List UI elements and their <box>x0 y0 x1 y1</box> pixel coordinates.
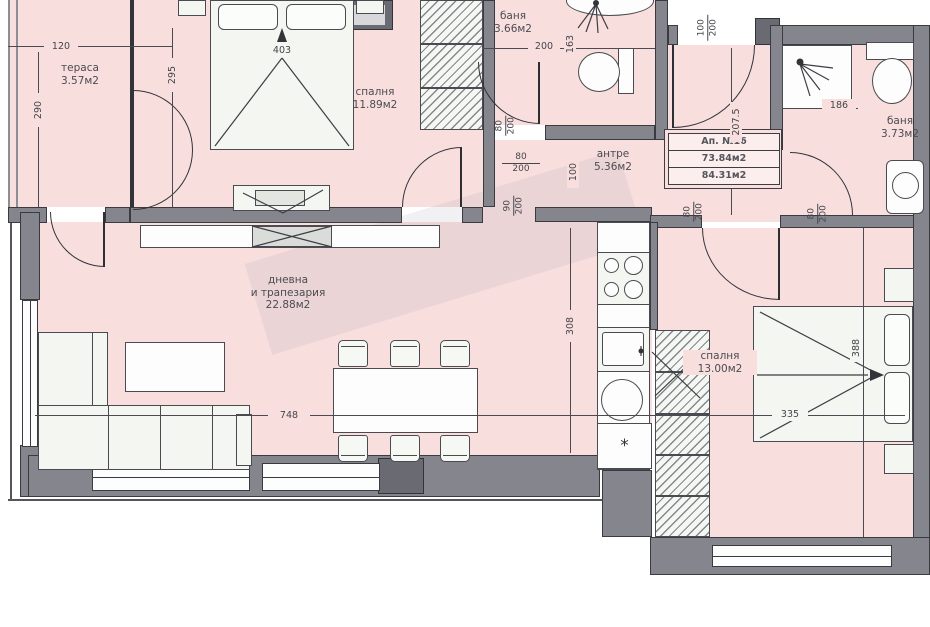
decor-overlay <box>0 0 930 627</box>
bedroom1-name: спалня <box>356 86 395 98</box>
bed2-arrow <box>870 369 884 381</box>
bath2-name: баня <box>887 115 913 127</box>
bed1-arrow <box>277 28 287 42</box>
label-bedroom2: спалня 13.00м2 <box>683 350 757 375</box>
dim-kitchen-height: 308 <box>564 310 576 342</box>
door-label-hall: 90 200 <box>502 191 526 221</box>
door-height: 200 <box>515 197 526 214</box>
bath1-name: баня <box>500 10 526 22</box>
door-width: 80 <box>502 152 539 164</box>
tv-cross <box>252 226 332 247</box>
living-area: 22.88м2 <box>266 299 311 311</box>
label-hall: антре 5.36м2 <box>580 148 646 173</box>
door-width: 90 <box>502 196 514 215</box>
dim-terrace-height: 290 <box>32 93 44 127</box>
bedroom1-area: 11.89м2 <box>353 99 398 111</box>
dim-bed2-height: 388 <box>850 334 862 362</box>
door-width: 80 <box>806 204 818 223</box>
bedroom2-area: 13.00м2 <box>698 363 743 375</box>
apartment-info-table: Ап. №16 73.84м2 84.31м2 <box>668 133 780 185</box>
door-width: 100 <box>696 15 708 40</box>
dim-hall-width: 100 <box>567 156 579 188</box>
bedroom2-name: спалня <box>701 350 740 362</box>
shower-head-dot <box>797 59 804 66</box>
door-label-entry: 100 200 <box>696 13 720 43</box>
door-label-bedroom1: 80 200 <box>495 152 547 176</box>
door-height: 200 <box>709 19 720 36</box>
dim-bath1-height: 163 <box>564 28 576 60</box>
dim-line <box>8 46 173 47</box>
label-living: дневна и трапезария 22.88м2 <box>240 274 336 312</box>
door-label-bath2: 80 200 <box>806 199 830 229</box>
terrace-area: 3.57м2 <box>61 75 99 87</box>
dim-living-width: 748 <box>268 409 310 422</box>
terrace-name: тераса <box>61 62 99 74</box>
door-height: 200 <box>695 203 706 220</box>
apartment-area-net: 73.84м2 <box>669 151 779 168</box>
dim-shower: 186 <box>822 99 856 111</box>
apartment-area-total: 84.31м2 <box>669 168 779 184</box>
bed1-fold-lines <box>215 58 349 146</box>
living-name-line2: и трапезария <box>251 287 326 299</box>
dim-bed1: 403 <box>266 44 298 57</box>
label-terrace: тераса 3.57м2 <box>42 62 118 87</box>
shower-spray-bath1 <box>578 4 608 33</box>
door-label-bedroom2: 80 200 <box>682 197 706 227</box>
dim-hall-height: 207.5 <box>730 102 742 142</box>
dim-295: 295 <box>166 58 178 92</box>
tv-antenna <box>243 190 323 213</box>
dim-terrace-width: 120 <box>44 40 78 53</box>
faucet-dot <box>639 349 644 354</box>
floor-plan: * Ап. №16 73.84м2 84.31м2 <box>0 0 930 627</box>
hall-area: 5.36м2 <box>594 161 632 173</box>
door-width: 80 <box>682 202 694 221</box>
label-bath1: баня 3.66м2 <box>480 10 546 35</box>
door-height: 200 <box>512 164 529 175</box>
dim-line <box>172 28 173 207</box>
living-name-line1: дневна <box>268 274 308 286</box>
dim-bath1-width: 200 <box>528 40 560 53</box>
dim-line <box>38 52 39 207</box>
door-width: 80 <box>494 116 506 135</box>
shower-head-dot <box>593 0 599 6</box>
door-height: 200 <box>507 117 518 134</box>
bath1-area: 3.66м2 <box>494 23 532 35</box>
hall-name: антре <box>597 148 630 160</box>
door-height: 200 <box>819 205 830 222</box>
door-label-bath1: 80 200 <box>494 111 518 141</box>
apartment-number: Ап. №16 <box>669 134 779 151</box>
dim-bed2-width: 335 <box>772 408 808 421</box>
shower-spray-bath2 <box>800 64 833 96</box>
bath2-area: 3.73м2 <box>881 128 919 140</box>
label-bath2: баня 3.73м2 <box>870 115 930 140</box>
dim-line <box>863 228 864 537</box>
label-bedroom1: спалня 11.89м2 <box>330 86 420 111</box>
